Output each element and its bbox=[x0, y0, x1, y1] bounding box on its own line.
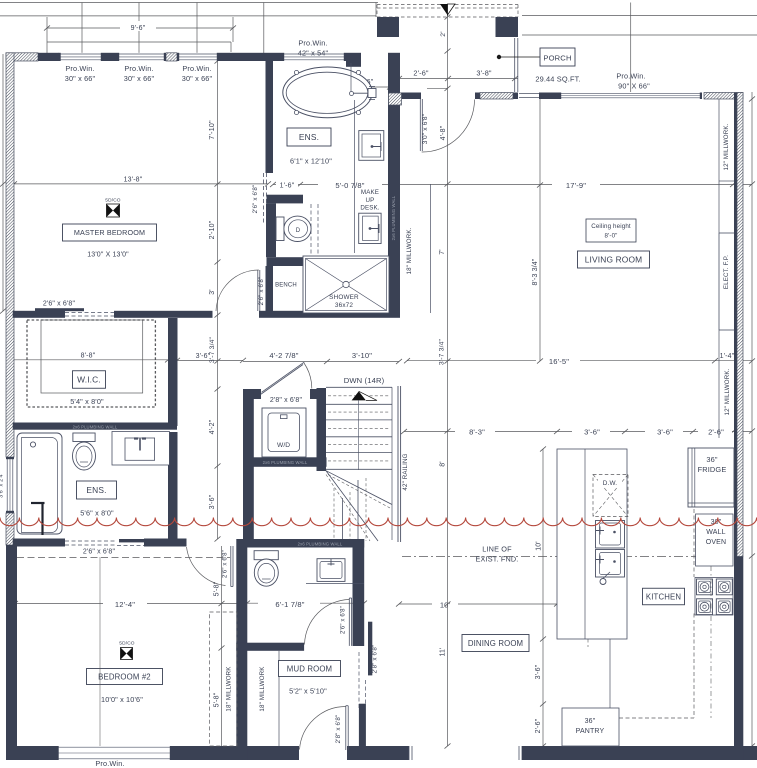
svg-text:EXIST. FND.: EXIST. FND. bbox=[475, 555, 518, 564]
svg-text:8'-3 3/4": 8'-3 3/4" bbox=[532, 258, 539, 285]
svg-text:8': 8' bbox=[440, 461, 447, 467]
svg-text:MUD ROOM: MUD ROOM bbox=[287, 664, 332, 673]
svg-text:30" x 66": 30" x 66" bbox=[124, 74, 155, 83]
svg-text:DWN (14R): DWN (14R) bbox=[344, 376, 385, 385]
svg-text:3'0" x 6'8": 3'0" x 6'8" bbox=[422, 113, 429, 144]
svg-text:8'-3": 8'-3" bbox=[469, 428, 485, 437]
svg-text:DINING ROOM: DINING ROOM bbox=[468, 639, 523, 648]
svg-text:2x6 PLUMBING WALL: 2x6 PLUMBING WALL bbox=[73, 424, 118, 429]
svg-text:PORCH: PORCH bbox=[543, 54, 571, 63]
svg-text:18" MILLWORK: 18" MILLWORK bbox=[226, 666, 233, 712]
svg-text:5'2" x 5'10": 5'2" x 5'10" bbox=[289, 687, 327, 696]
svg-text:ELECT. F.P.: ELECT. F.P. bbox=[723, 255, 730, 289]
svg-text:7': 7' bbox=[439, 249, 446, 255]
svg-text:2x6 PLUMBING WALL: 2x6 PLUMBING WALL bbox=[263, 460, 308, 465]
svg-text:LINE OF: LINE OF bbox=[482, 545, 512, 554]
svg-text:7'-10": 7'-10" bbox=[207, 120, 216, 140]
svg-text:1'-4": 1'-4" bbox=[720, 353, 735, 360]
svg-text:3': 3' bbox=[209, 289, 216, 295]
svg-text:W.I.C.: W.I.C. bbox=[77, 375, 101, 385]
svg-text:2'-6": 2'-6" bbox=[413, 69, 429, 78]
svg-text:ENS.: ENS. bbox=[299, 132, 319, 142]
svg-text:Pro.Win.: Pro.Win. bbox=[124, 64, 153, 73]
svg-text:2'-6": 2'-6" bbox=[708, 428, 724, 437]
svg-text:Ceiling height: Ceiling height bbox=[591, 223, 631, 230]
svg-text:6'-1 7/8": 6'-1 7/8" bbox=[275, 600, 304, 609]
svg-text:MASTER BEDROOM: MASTER BEDROOM bbox=[74, 228, 145, 237]
svg-text:ENS.: ENS. bbox=[86, 485, 106, 495]
svg-text:9'-6": 9'-6" bbox=[131, 25, 146, 32]
svg-text:PANTRY: PANTRY bbox=[576, 728, 605, 735]
svg-text:8'-0": 8'-0" bbox=[604, 233, 617, 240]
svg-text:5D/CO: 5D/CO bbox=[105, 198, 121, 204]
svg-text:DESK.: DESK. bbox=[360, 205, 379, 212]
svg-text:4'-8": 4'-8" bbox=[440, 125, 447, 140]
svg-text:36": 36" bbox=[706, 455, 718, 464]
svg-text:2'6" x 6'8": 2'6" x 6'8" bbox=[223, 550, 229, 578]
svg-text:12'-4": 12'-4" bbox=[115, 600, 135, 609]
svg-text:5D/CO: 5D/CO bbox=[119, 641, 135, 647]
svg-text:MAKE: MAKE bbox=[361, 189, 379, 196]
svg-text:OVEN: OVEN bbox=[706, 539, 726, 546]
svg-text:2x6 PLUMBING WALL: 2x6 PLUMBING WALL bbox=[391, 195, 396, 240]
svg-text:2'8" x 6'8": 2'8" x 6'8" bbox=[270, 397, 303, 404]
svg-text:5'4" x 8'0": 5'4" x 8'0" bbox=[70, 397, 104, 406]
svg-text:12" MILLWORK.: 12" MILLWORK. bbox=[724, 368, 731, 415]
svg-text:D: D bbox=[296, 228, 301, 234]
svg-text:6'1" x 12'10": 6'1" x 12'10" bbox=[290, 157, 332, 166]
svg-text:36": 36" bbox=[585, 718, 596, 725]
svg-text:KITCHEN: KITCHEN bbox=[646, 592, 681, 601]
svg-text:16'-5": 16'-5" bbox=[549, 357, 569, 366]
svg-text:2'8" x 6'8": 2'8" x 6'8" bbox=[335, 715, 342, 744]
svg-text:2'6" x 6'8": 2'6" x 6'8" bbox=[341, 606, 347, 634]
svg-text:WALL: WALL bbox=[706, 529, 725, 536]
svg-text:2x6 PLUMBING WALL: 2x6 PLUMBING WALL bbox=[298, 542, 343, 547]
svg-text:Pro.Win.: Pro.Win. bbox=[65, 64, 94, 73]
svg-text:30" x 66": 30" x 66" bbox=[182, 74, 213, 83]
svg-text:Pro.Win.: Pro.Win. bbox=[616, 72, 645, 81]
svg-text:4'-2 7/8": 4'-2 7/8" bbox=[269, 351, 298, 360]
svg-text:3'6" x 2'4": 3'6" x 2'4" bbox=[0, 472, 5, 498]
svg-text:W/D: W/D bbox=[277, 442, 290, 449]
svg-text:BENCH: BENCH bbox=[275, 283, 297, 289]
svg-text:11': 11' bbox=[440, 647, 447, 656]
svg-text:Pro.Win.: Pro.Win. bbox=[95, 759, 124, 768]
svg-text:29.44 SQ.FT.: 29.44 SQ.FT. bbox=[535, 75, 580, 84]
svg-text:5'6" x 8'0": 5'6" x 8'0" bbox=[80, 509, 114, 518]
svg-text:SHOWER: SHOWER bbox=[329, 294, 359, 301]
svg-text:2'8" x 6'8": 2'8" x 6'8" bbox=[372, 645, 379, 674]
svg-text:17'-9": 17'-9" bbox=[566, 181, 586, 190]
svg-text:3'-6": 3'-6" bbox=[209, 494, 216, 509]
svg-text:2': 2' bbox=[440, 31, 447, 36]
svg-text:1'-6": 1'-6" bbox=[280, 183, 295, 190]
svg-text:36x72: 36x72 bbox=[335, 302, 353, 309]
svg-text:42" RAILING: 42" RAILING bbox=[402, 453, 409, 490]
svg-text:3'-6": 3'-6" bbox=[657, 428, 673, 437]
svg-text:UP: UP bbox=[366, 197, 375, 204]
svg-text:2'-10": 2'-10" bbox=[209, 220, 216, 239]
svg-text:10': 10' bbox=[536, 541, 543, 551]
svg-text:10'0" x 10'6": 10'0" x 10'6" bbox=[101, 695, 143, 704]
svg-text:18" MILLWORK.: 18" MILLWORK. bbox=[406, 227, 413, 274]
svg-text:Pro.Win.: Pro.Win. bbox=[298, 39, 327, 48]
svg-text:2'6" x 6'8": 2'6" x 6'8" bbox=[252, 185, 259, 214]
svg-text:3'-6": 3'-6" bbox=[535, 664, 542, 679]
svg-text:FRIDGE: FRIDGE bbox=[698, 465, 727, 474]
svg-text:3'-6": 3'-6" bbox=[584, 428, 600, 437]
svg-text:13'-8": 13'-8" bbox=[124, 177, 143, 184]
svg-text:D.W.: D.W. bbox=[603, 480, 618, 487]
svg-text:Pro.Win.: Pro.Win. bbox=[182, 64, 211, 73]
svg-text:8'-8": 8'-8" bbox=[81, 352, 96, 359]
svg-text:42" x 54": 42" x 54" bbox=[298, 49, 329, 58]
svg-text:10': 10' bbox=[440, 601, 451, 610]
svg-text:2'6" x 6'8": 2'6" x 6'8" bbox=[83, 549, 116, 556]
svg-text:90" X 66": 90" X 66" bbox=[618, 82, 650, 91]
svg-text:13'0" X 13'0": 13'0" X 13'0" bbox=[87, 252, 129, 259]
svg-text:3'-7 3/4": 3'-7 3/4" bbox=[209, 336, 216, 363]
svg-text:3'-8": 3'-8" bbox=[476, 69, 492, 78]
svg-text:12" MILLWORK.: 12" MILLWORK. bbox=[723, 123, 730, 170]
svg-text:2'-6": 2'-6" bbox=[535, 718, 542, 733]
svg-text:2'6" x 6'8": 2'6" x 6'8" bbox=[258, 277, 265, 306]
svg-text:3'-10": 3'-10" bbox=[352, 351, 372, 360]
svg-text:LIVING ROOM: LIVING ROOM bbox=[585, 255, 643, 265]
svg-text:4'-2": 4'-2" bbox=[209, 419, 216, 434]
svg-text:BEDROOM #2: BEDROOM #2 bbox=[98, 672, 151, 681]
svg-text:30" x 66": 30" x 66" bbox=[65, 74, 96, 83]
svg-text:3'-7 3/4": 3'-7 3/4" bbox=[439, 338, 446, 365]
svg-text:18" MILLWORK: 18" MILLWORK bbox=[259, 666, 266, 712]
svg-text:5'-8": 5'-8" bbox=[214, 692, 221, 707]
svg-text:2'6" x 6'8": 2'6" x 6'8" bbox=[43, 301, 76, 308]
